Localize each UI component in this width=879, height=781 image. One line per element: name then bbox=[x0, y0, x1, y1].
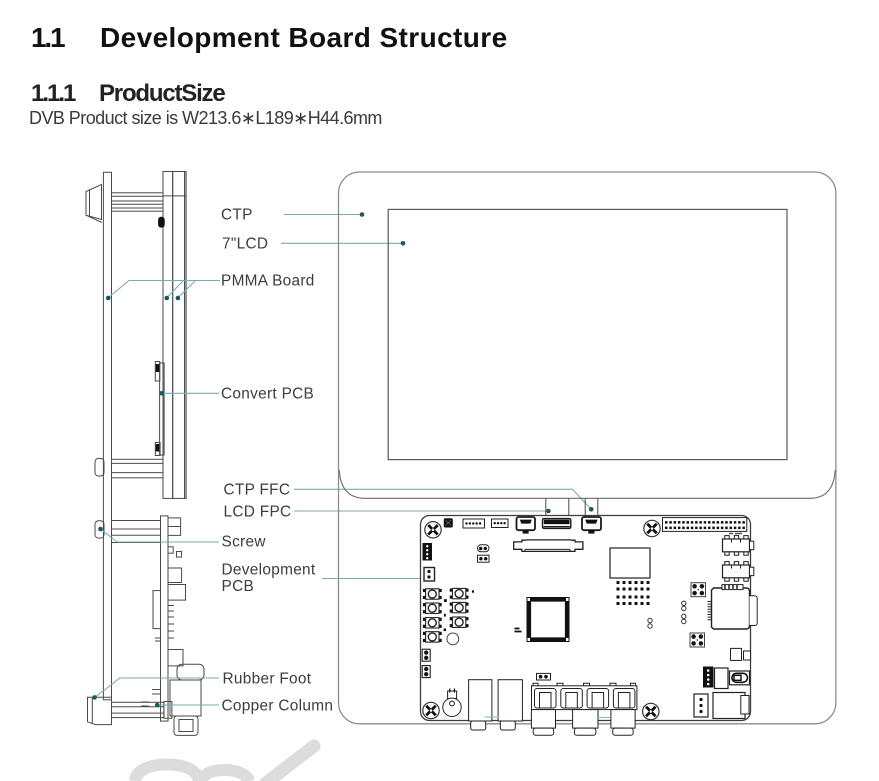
svg-text:Development: Development bbox=[222, 562, 316, 579]
svg-text:Rubber Foot: Rubber Foot bbox=[223, 671, 312, 688]
svg-text:PCB: PCB bbox=[222, 578, 255, 595]
svg-text:LCD FPC: LCD FPC bbox=[224, 504, 292, 521]
svg-text:CTP FFC: CTP FFC bbox=[224, 482, 291, 499]
svg-text:PMMA Board: PMMA Board bbox=[221, 273, 315, 290]
svg-text:CTP: CTP bbox=[221, 207, 253, 224]
svg-text:7"LCD: 7"LCD bbox=[222, 236, 268, 253]
svg-text:Copper Column: Copper Column bbox=[222, 698, 334, 715]
svg-text:Convert PCB: Convert PCB bbox=[221, 386, 314, 403]
svg-text:Screw: Screw bbox=[222, 534, 267, 551]
